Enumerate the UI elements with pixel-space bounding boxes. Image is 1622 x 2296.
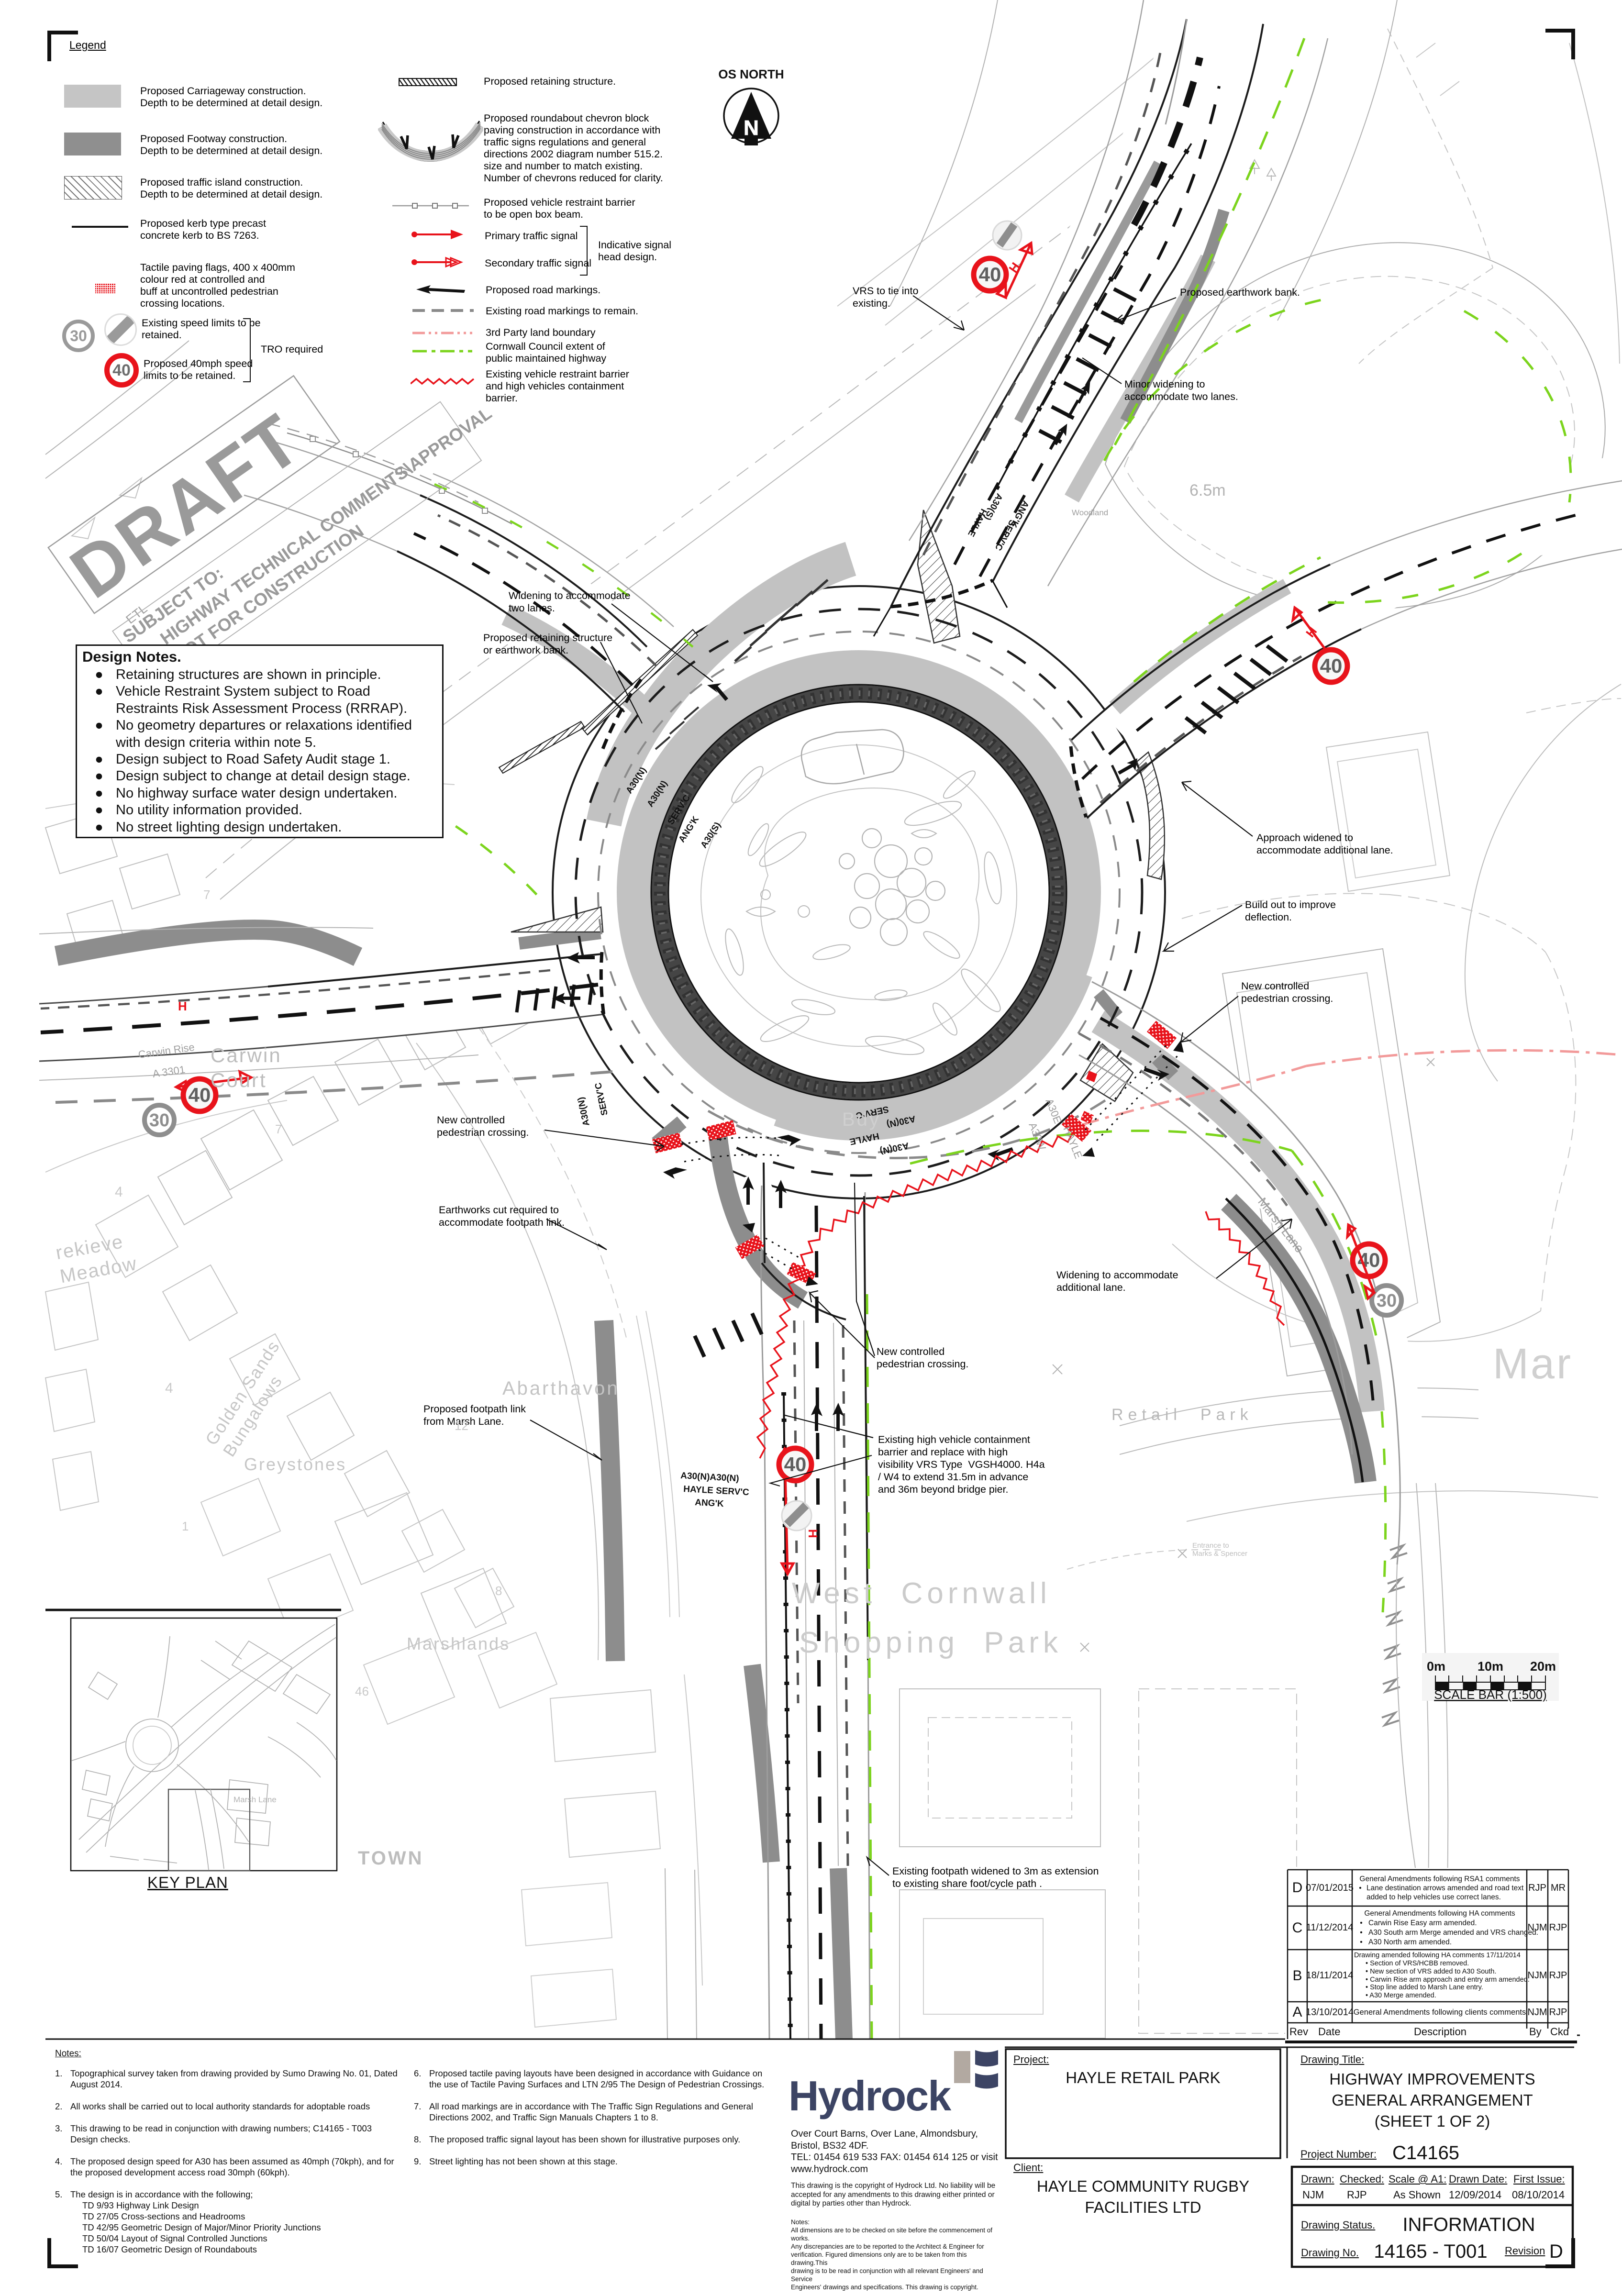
svg-text:40: 40 bbox=[189, 1084, 211, 1106]
svg-text:40: 40 bbox=[979, 263, 1001, 286]
svg-text:40: 40 bbox=[1320, 654, 1343, 677]
svg-text:N: N bbox=[744, 116, 759, 140]
svg-text:HAYLE SERV'C: HAYLE SERV'C bbox=[683, 1484, 750, 1497]
svg-text:0m: 0m bbox=[1427, 1659, 1445, 1674]
svg-text:A30(N): A30(N) bbox=[576, 1096, 592, 1127]
svg-text:A30(N)A30(N): A30(N)A30(N) bbox=[680, 1471, 739, 1484]
svg-text:A30E: A30E bbox=[1043, 1097, 1064, 1125]
svg-text:ANG'K: ANG'K bbox=[695, 1497, 724, 1509]
svg-text:30: 30 bbox=[1377, 1291, 1397, 1311]
svg-text:20m: 20m bbox=[1530, 1659, 1556, 1674]
svg-text:10m: 10m bbox=[1478, 1659, 1503, 1674]
svg-text:SCALE BAR (1:500): SCALE BAR (1:500) bbox=[1434, 1687, 1547, 1702]
svg-text:SERV'C: SERV'C bbox=[593, 1082, 610, 1117]
svg-text:30: 30 bbox=[149, 1110, 169, 1131]
svg-text:H: H bbox=[806, 1529, 820, 1538]
svg-text:A 3301: A 3301 bbox=[152, 1064, 186, 1080]
svg-text:40: 40 bbox=[784, 1453, 807, 1475]
svg-text:H: H bbox=[178, 999, 187, 1013]
svg-text:A30(N): A30(N) bbox=[879, 1140, 910, 1156]
